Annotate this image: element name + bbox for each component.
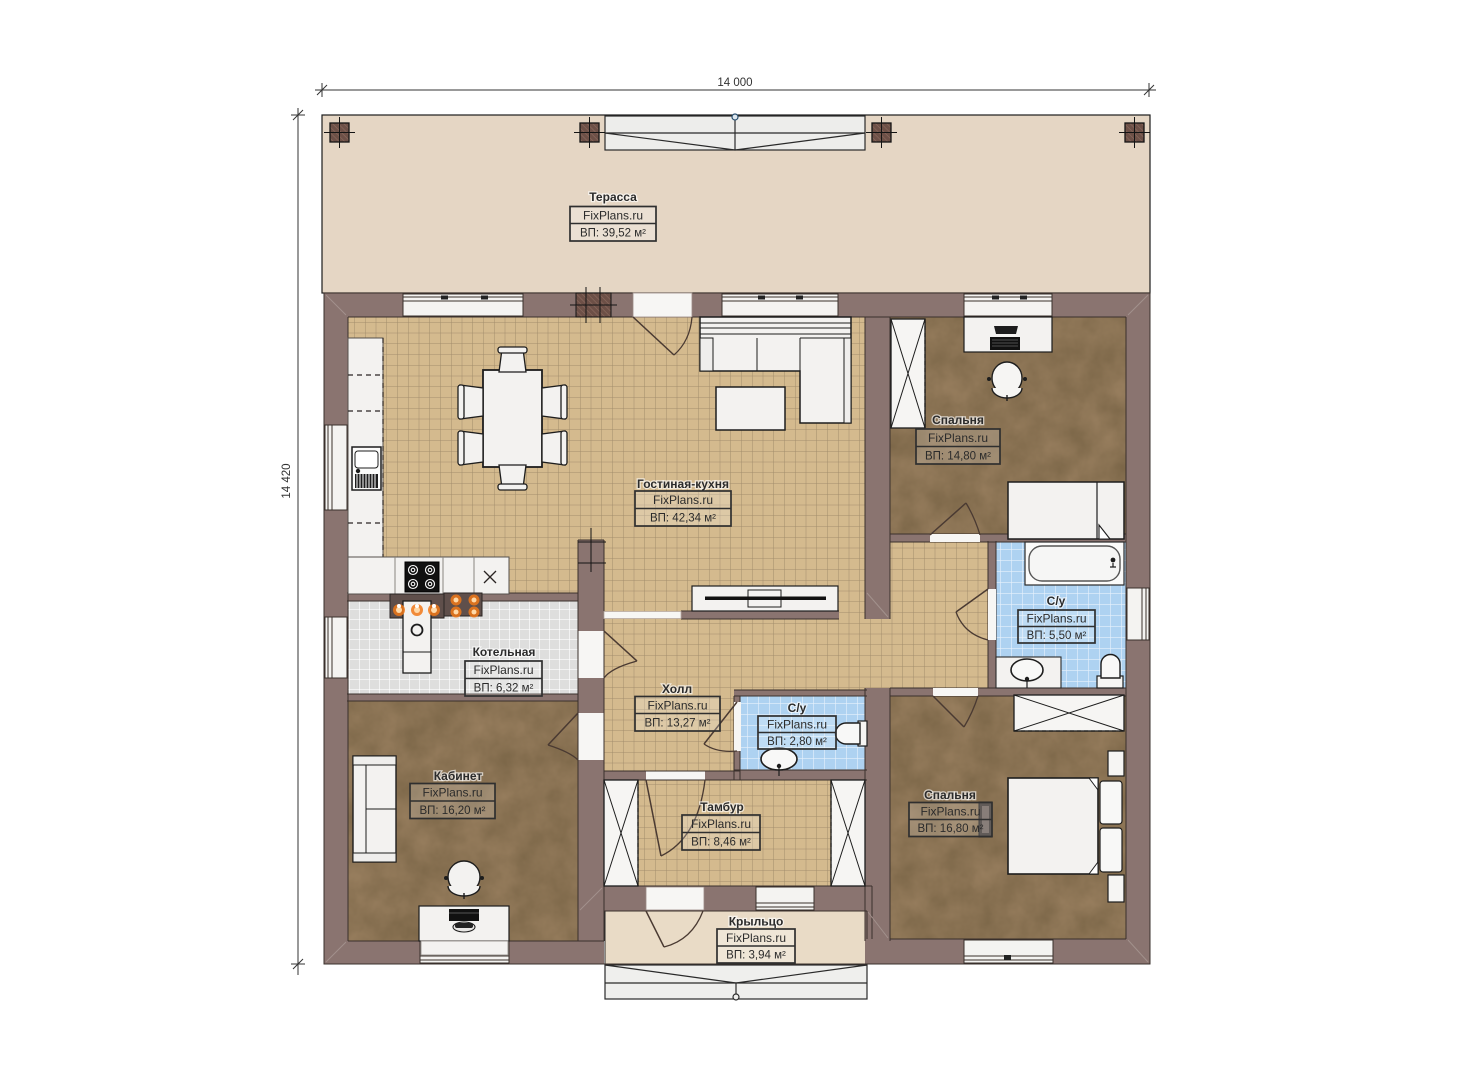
svg-text:ВП: 6,32 м²: ВП: 6,32 м² [474, 683, 534, 695]
svg-text:ВП: 39,52 м²: ВП: 39,52 м² [580, 228, 646, 240]
svg-text:14 420: 14 420 [281, 463, 293, 498]
svg-text:FixPlans.ru: FixPlans.ru [767, 718, 827, 732]
svg-text:Холл: Холл [662, 682, 692, 696]
svg-text:Спальня: Спальня [932, 413, 984, 427]
svg-text:FixPlans.ru: FixPlans.ru [647, 699, 707, 713]
svg-text:14 000: 14 000 [717, 77, 752, 89]
svg-text:ВП: 5,50 м²: ВП: 5,50 м² [1027, 630, 1087, 642]
svg-text:ВП: 13,27 м²: ВП: 13,27 м² [644, 718, 710, 730]
svg-text:ВП: 16,80 м²: ВП: 16,80 м² [917, 823, 983, 835]
svg-text:С/у: С/у [788, 701, 807, 715]
svg-text:FixPlans.ru: FixPlans.ru [422, 786, 482, 800]
svg-text:Тамбур: Тамбур [700, 800, 744, 814]
svg-text:FixPlans.ru: FixPlans.ru [920, 805, 980, 819]
svg-text:FixPlans.ru: FixPlans.ru [1026, 612, 1086, 626]
svg-text:ВП: 14,80 м²: ВП: 14,80 м² [925, 451, 991, 463]
svg-text:Терасса: Терасса [589, 190, 637, 204]
svg-text:FixPlans.ru: FixPlans.ru [726, 931, 786, 945]
svg-text:FixPlans.ru: FixPlans.ru [691, 817, 751, 831]
svg-text:Гостиная-кухня: Гостиная-кухня [637, 477, 729, 491]
svg-text:С/у: С/у [1047, 594, 1066, 608]
svg-text:Спальня: Спальня [924, 788, 976, 802]
svg-text:Крыльцо: Крыльцо [729, 915, 784, 929]
svg-text:ВП: 3,94 м²: ВП: 3,94 м² [726, 950, 786, 962]
svg-text:ВП: 8,46 м²: ВП: 8,46 м² [691, 837, 751, 849]
svg-text:ВП: 42,34 м²: ВП: 42,34 м² [650, 513, 716, 525]
svg-text:FixPlans.ru: FixPlans.ru [583, 209, 643, 223]
svg-text:FixPlans.ru: FixPlans.ru [653, 493, 713, 507]
svg-text:FixPlans.ru: FixPlans.ru [928, 431, 988, 445]
svg-text:ВП: 2,80 м²: ВП: 2,80 м² [767, 736, 827, 748]
svg-text:Кабинет: Кабинет [434, 769, 483, 783]
svg-text:ВП: 16,20 м²: ВП: 16,20 м² [419, 805, 485, 817]
svg-text:FixPlans.ru: FixPlans.ru [473, 663, 533, 677]
svg-text:Котельная: Котельная [473, 645, 536, 659]
